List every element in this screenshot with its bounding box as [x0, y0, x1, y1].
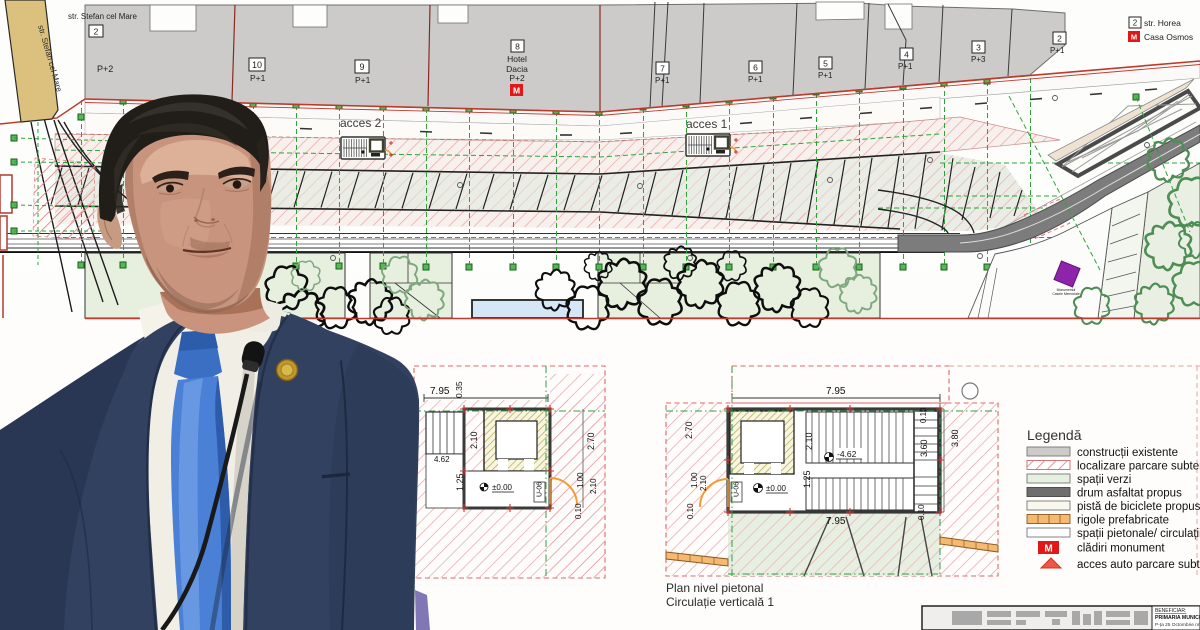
svg-text:Legendă: Legendă [1027, 427, 1082, 443]
svg-text:P+1: P+1 [655, 76, 670, 85]
svg-text:localizare parcare subterană: localizare parcare subterană [1077, 461, 1200, 473]
svg-text:Hotel: Hotel [507, 54, 527, 64]
svg-text:9: 9 [359, 62, 364, 72]
svg-text:7.95: 7.95 [826, 516, 846, 527]
svg-text:2: 2 [1133, 19, 1138, 28]
svg-text:2.10: 2.10 [469, 431, 479, 449]
svg-text:0.35: 0.35 [454, 381, 464, 398]
svg-text:acces 2: acces 2 [340, 116, 382, 130]
svg-text:str. Horea: str. Horea [1144, 18, 1181, 28]
svg-text:P+1: P+1 [1050, 46, 1065, 55]
svg-text:1.00: 1.00 [576, 472, 585, 488]
svg-text:P-ța 25 Octombrie nr: P-ța 25 Octombrie nr [1155, 622, 1200, 628]
svg-text:P+1: P+1 [250, 73, 266, 83]
svg-text:3.60: 3.60 [919, 439, 929, 457]
svg-text:Plan nivel pietonal: Plan nivel pietonal [666, 581, 763, 595]
svg-text:±0.00: ±0.00 [766, 484, 787, 493]
svg-text:P+1: P+1 [898, 62, 913, 71]
svg-text:clădiri monument: clădiri monument [1077, 543, 1165, 555]
svg-text:2.10: 2.10 [589, 478, 598, 494]
svg-text:U-06: U-06 [537, 482, 544, 497]
svg-text:Casa Osmos: Casa Osmos [1144, 32, 1193, 42]
svg-text:3: 3 [976, 43, 981, 53]
svg-text:2.10: 2.10 [804, 432, 814, 450]
svg-text:2: 2 [94, 27, 99, 37]
svg-text:0.10: 0.10 [919, 407, 928, 423]
svg-text:M: M [513, 86, 520, 96]
svg-text:Casele Memoriale: Casele Memoriale [1052, 292, 1079, 296]
svg-text:P+1: P+1 [748, 75, 763, 84]
svg-text:2.70: 2.70 [684, 421, 694, 439]
svg-text:spații pietonale/ circulații a: spații pietonale/ circulații auto [1077, 528, 1200, 540]
svg-text:2: 2 [1057, 34, 1062, 44]
svg-text:BENEFICIAR:: BENEFICIAR: [1155, 608, 1186, 614]
svg-text:8: 8 [515, 42, 520, 52]
svg-text:-4.62: -4.62 [837, 449, 857, 459]
svg-text:U-06: U-06 [734, 482, 741, 497]
svg-text:6: 6 [753, 63, 758, 73]
svg-text:7.95: 7.95 [430, 386, 450, 397]
svg-text:3.80: 3.80 [950, 429, 960, 447]
svg-text:P+2: P+2 [97, 64, 113, 74]
svg-text:7.95: 7.95 [826, 386, 846, 397]
svg-text:1.00: 1.00 [690, 472, 699, 488]
svg-text:acces auto parcare subterană: acces auto parcare subterană [1077, 559, 1200, 571]
svg-text:7: 7 [660, 64, 665, 74]
svg-text:P+1: P+1 [818, 71, 833, 80]
svg-text:rigole prefabricate: rigole prefabricate [1077, 515, 1169, 527]
svg-text:2.70: 2.70 [586, 432, 596, 450]
svg-text:M: M [1044, 544, 1052, 555]
svg-text:5: 5 [823, 59, 828, 69]
svg-text:M: M [1131, 33, 1137, 42]
svg-text:P+3: P+3 [971, 55, 986, 64]
svg-text:10: 10 [252, 60, 262, 70]
svg-text:±0.00: ±0.00 [492, 483, 513, 492]
svg-text:0.10: 0.10 [686, 503, 695, 519]
svg-text:str. Stefan cel Mare: str. Stefan cel Mare [68, 12, 137, 21]
svg-text:construcții existente: construcții existente [1077, 447, 1178, 459]
svg-text:2.10: 2.10 [699, 475, 708, 491]
svg-text:drum asfaltat propus: drum asfaltat propus [1077, 488, 1182, 500]
svg-text:0.10: 0.10 [574, 503, 583, 519]
svg-text:4: 4 [904, 50, 909, 60]
svg-text:acces 1: acces 1 [686, 117, 728, 131]
svg-text:pistă de biciclete propusă: pistă de biciclete propusă [1077, 501, 1200, 513]
svg-text:1.25: 1.25 [802, 470, 812, 488]
svg-text:PRIMARIA MUNICIPI: PRIMARIA MUNICIPI [1155, 615, 1200, 621]
svg-text:P+1: P+1 [355, 75, 371, 85]
svg-text:1.25: 1.25 [455, 473, 465, 491]
svg-text:4.62: 4.62 [434, 455, 450, 464]
svg-text:Circulație verticală 1: Circulație verticală 1 [666, 595, 774, 609]
svg-text:P+2: P+2 [509, 73, 525, 83]
svg-text:spații verzi: spații verzi [1077, 474, 1131, 486]
